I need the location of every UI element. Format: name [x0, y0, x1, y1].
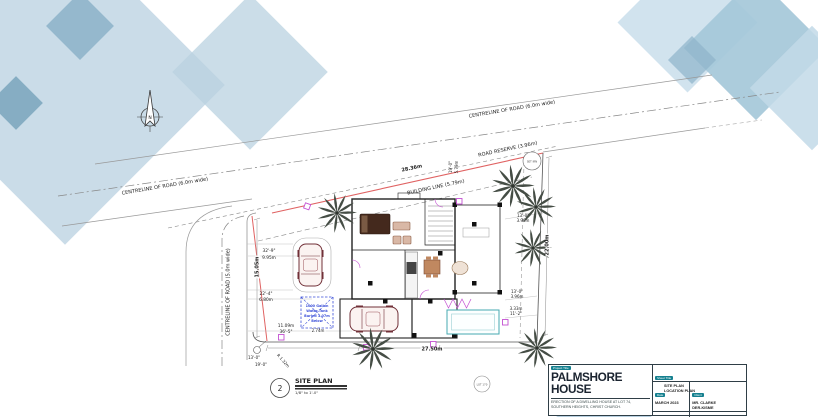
dim-6-80: 6.80m — [259, 299, 273, 303]
dim-9-95: 9.95m — [262, 257, 276, 261]
client-label-chip: Client — [692, 393, 704, 397]
date-cell: Date MARCH 2023 — [653, 382, 690, 411]
title-block-fields: Sheet Title SITE PLAN LOCATION PLAN Date… — [653, 365, 746, 415]
siteplan-scale: 1/8" to 1'-0" — [295, 390, 318, 395]
siteplan-number: 2 — [278, 384, 283, 393]
client-line2: DER-KISME — [692, 406, 744, 411]
client-cell: Client MR. CLARKE DER-KISME — [690, 382, 746, 411]
title-block-project-cell: Project Title PALMSHORE HOUSE ERECTION O… — [549, 365, 653, 415]
tank-text-4: Below — [311, 319, 323, 323]
drawn-by-cell: Drawn By ROMFORD THOMSON — [690, 412, 746, 417]
dim-3-96-bottom: 3.96m — [511, 295, 524, 299]
dim-11-09: 11.09m — [278, 325, 295, 329]
dim-2-74: 2.74m — [311, 329, 326, 333]
pool — [447, 310, 499, 334]
dim-36-5: 36'-5" — [280, 331, 293, 335]
dim-west: 15.05m — [256, 255, 261, 278]
date-label-chip: Date — [655, 393, 665, 397]
scale-cell: Scale AS SHOWN — [653, 412, 690, 417]
stairs — [428, 206, 453, 241]
dim-offset-13: 13'-0" — [248, 356, 260, 360]
dim-south: 27.50m — [420, 348, 443, 353]
dim-5-79: 5.79m — [455, 161, 459, 174]
date-value: MARCH 2023 — [655, 401, 687, 406]
title-block: Project Title PALMSHORE HOUSE ERECTION O… — [548, 364, 747, 416]
siteplan-number-bubble: 2 — [271, 379, 290, 398]
dim-3-96-top: 3.96m — [517, 219, 530, 223]
road-centreline-vertical-label: CENTRELINE OF ROAD (5.0m wide) — [227, 248, 232, 335]
tank-text-1: 1000 Gallon — [306, 304, 329, 308]
furniture — [360, 214, 489, 298]
north-letter: N — [148, 115, 151, 121]
project-description: ERECTION OF A DWELLING HOUSE AT LOT 74, … — [551, 398, 650, 410]
dim-offset-19: 19'-0" — [255, 363, 267, 367]
tank-text-2: Water Tank — [306, 309, 328, 313]
car-horizontal — [350, 306, 398, 333]
sheet-label-chip: Sheet Title — [655, 376, 673, 380]
set-pin-label: SET IRN — [527, 160, 537, 164]
site-plan-drawing: 1000 Gallon Water Tank Buried 1.07m Belo… — [0, 0, 818, 417]
dim-east: 22.00m — [546, 233, 551, 256]
lot-label: LOT 170 — [477, 383, 488, 387]
dim-11-2: 11'-2" — [510, 312, 522, 316]
title-block-row-2: Scale AS SHOWN Drawn By ROMFORD THOMSON — [653, 412, 746, 417]
title-block-row-1: Date MARCH 2023 Client MR. CLARKE DER-KI… — [653, 382, 746, 412]
road-lines — [58, 75, 780, 366]
north-arrow: N — [137, 90, 163, 132]
siteplan-title: SITE PLAN — [295, 377, 333, 385]
tank-text-3: Buried 1.07m — [304, 314, 330, 318]
survey-markers: SET IRN LOT 170 — [254, 152, 542, 392]
project-title: PALMSHORE HOUSE — [551, 371, 646, 396]
water-tank: 1000 Gallon Water Tank Buried 1.07m Belo… — [301, 297, 333, 328]
sheet-title-cell: Sheet Title SITE PLAN LOCATION PLAN — [653, 365, 746, 382]
dim-22-4: 22'-4" — [260, 293, 273, 297]
site-plan-page: 1000 Gallon Water Tank Buried 1.07m Belo… — [0, 0, 818, 417]
car-vertical — [298, 244, 324, 286]
dim-32-9: 32'-9" — [263, 250, 276, 254]
dim-19-0: 19'-0" — [449, 161, 453, 173]
siteplan-title-rule — [295, 385, 347, 388]
